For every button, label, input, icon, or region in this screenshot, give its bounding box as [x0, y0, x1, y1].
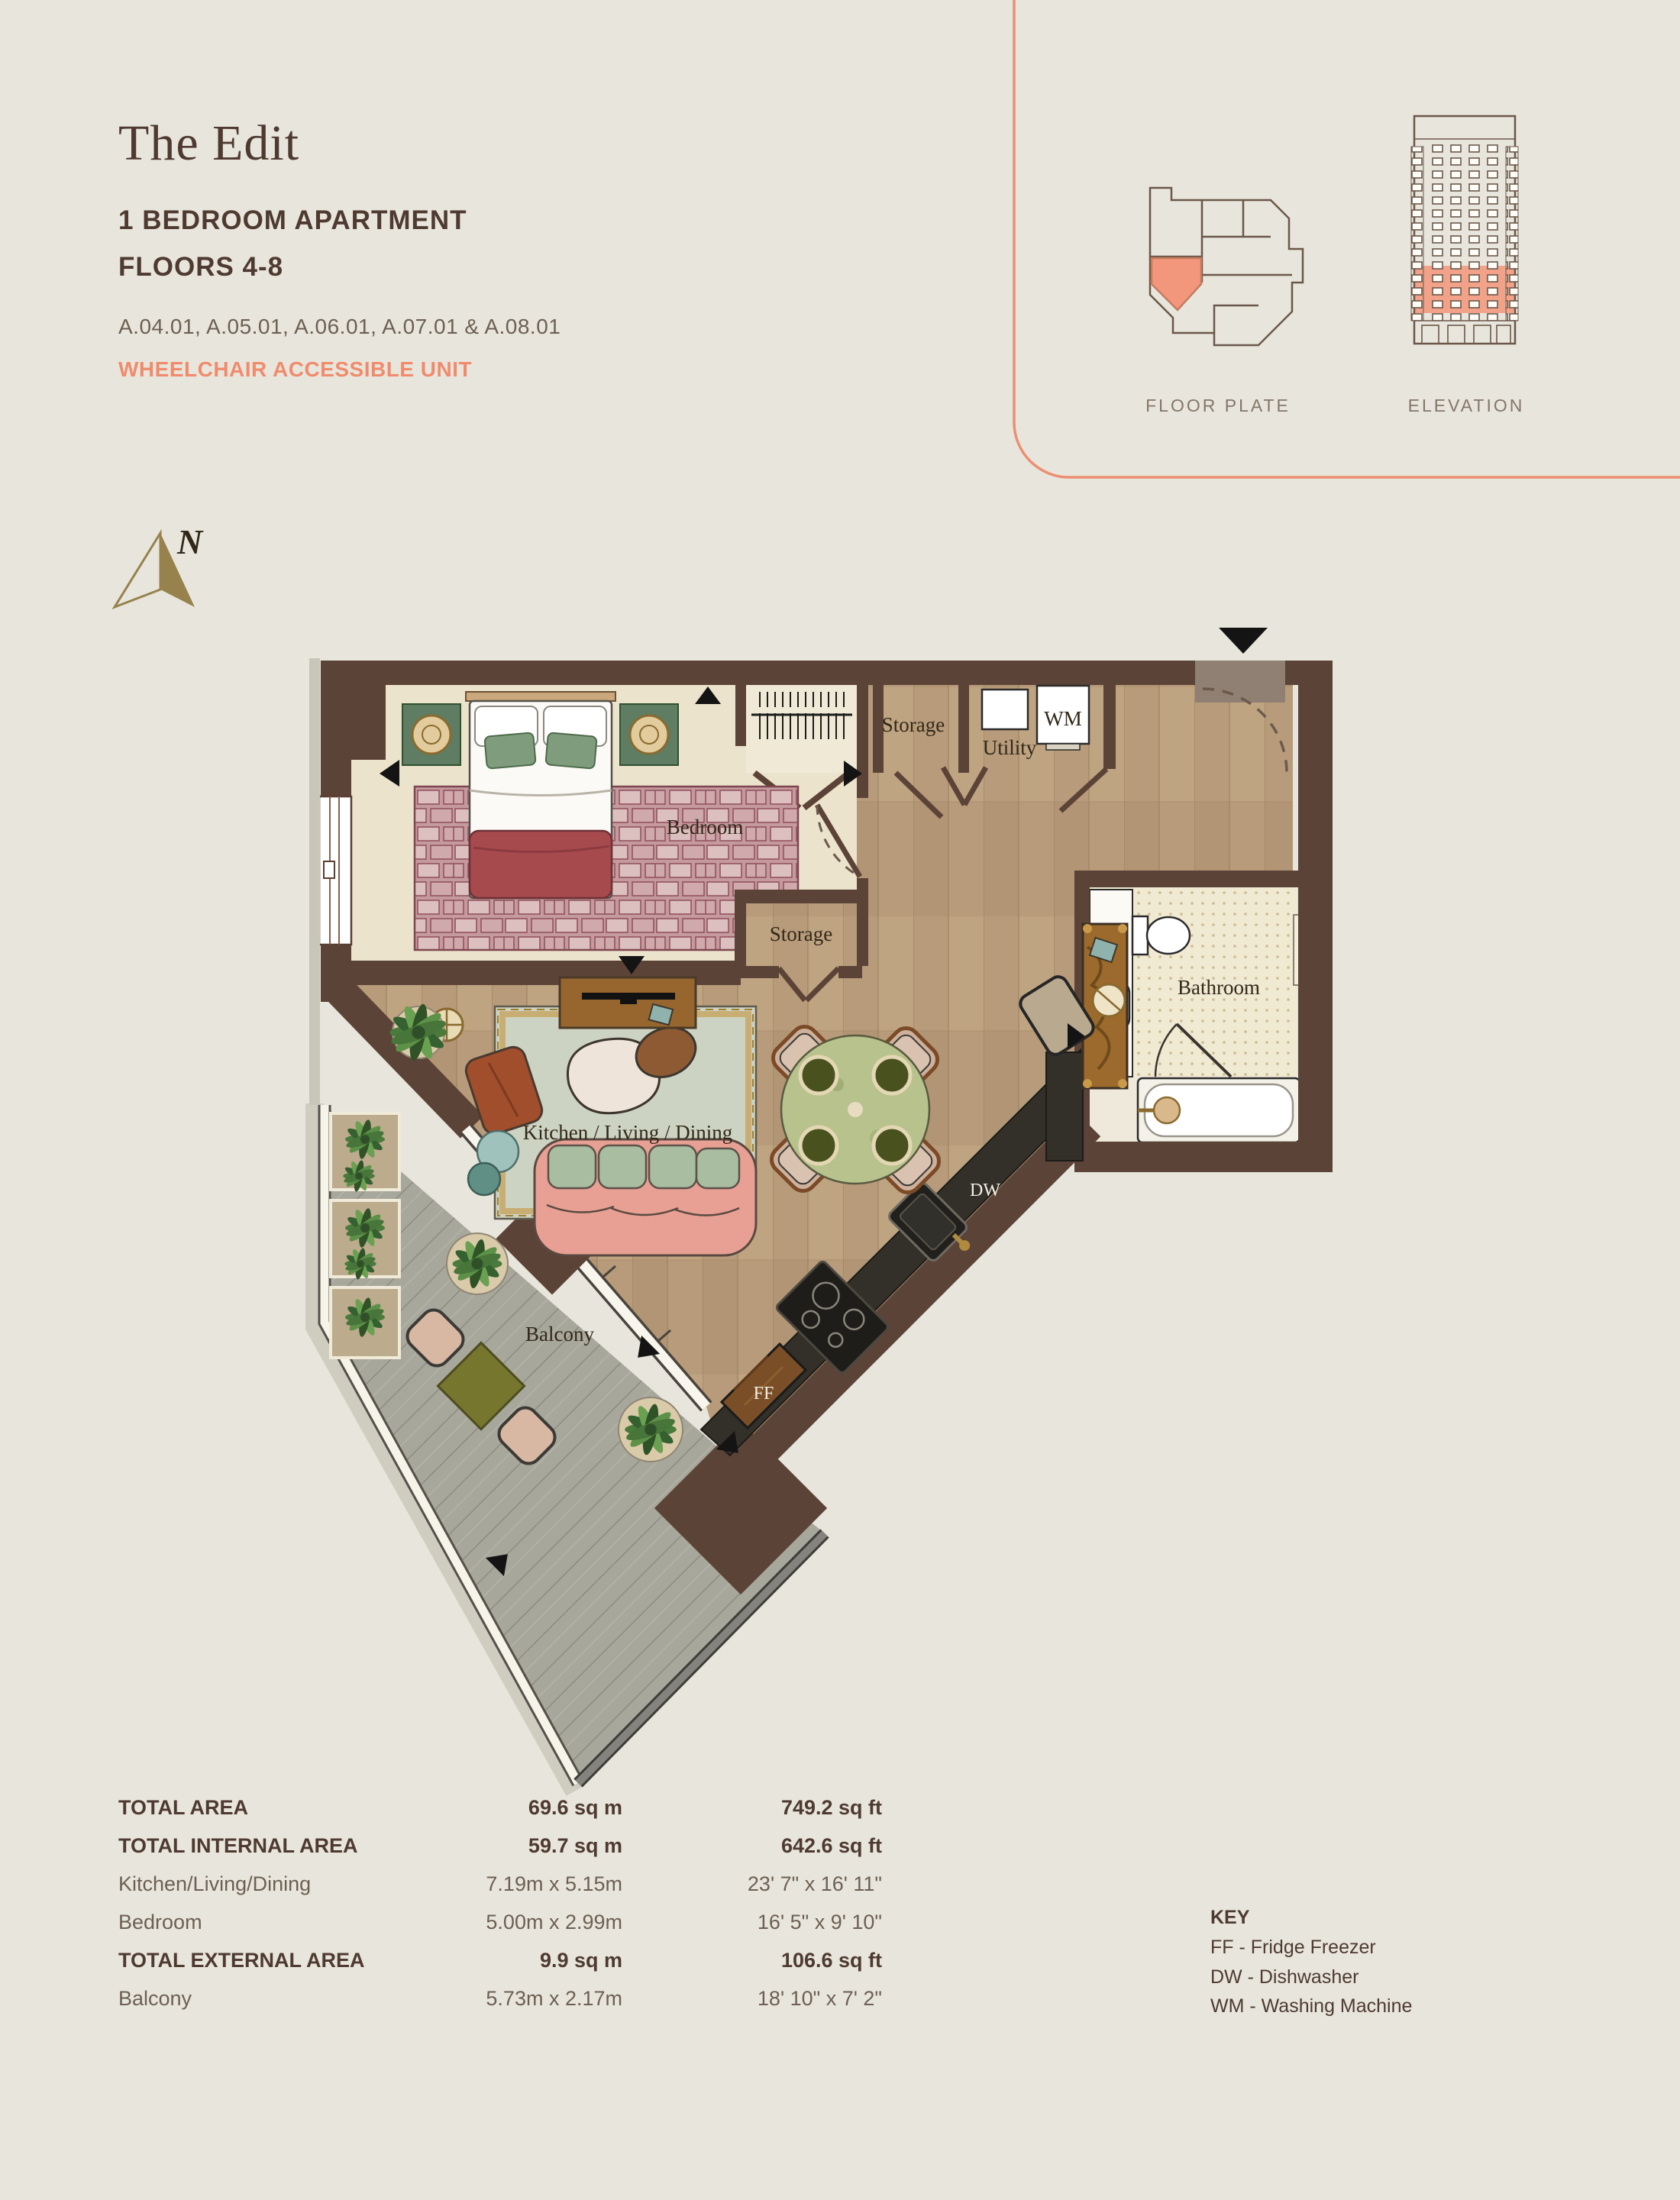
table-metric: 5.00m x 2.99m	[424, 1911, 622, 1934]
table-imperial: 23' 7" x 16' 11"	[622, 1872, 882, 1896]
tv	[582, 993, 675, 1000]
bedroom-window	[319, 796, 351, 945]
table-imperial: 642.6 sq ft	[622, 1834, 882, 1858]
north-arrow-outline	[115, 533, 160, 607]
bathroom-label: Bathroom	[1178, 976, 1260, 999]
table-row-label: Bedroom	[118, 1911, 424, 1934]
table-imperial: 18' 10" x 7' 2"	[622, 1987, 882, 2011]
table-imperial: 749.2 sq ft	[622, 1796, 882, 1820]
table-row-label: TOTAL AREA	[118, 1796, 424, 1820]
north-label: N	[176, 522, 204, 561]
table-row-label: Balcony	[118, 1987, 424, 2011]
north-arrow: N	[115, 522, 204, 607]
ff-label: FF	[754, 1384, 774, 1404]
key-title: KEY	[1210, 1903, 1412, 1933]
table-imperial: 106.6 sq ft	[622, 1949, 882, 1972]
table-metric: 59.7 sq m	[424, 1834, 622, 1858]
accent-pillow	[484, 732, 535, 768]
storage-top-label: Storage	[882, 713, 945, 736]
floor-plate-unit-highlight	[1152, 258, 1201, 310]
bedside-table	[630, 716, 668, 754]
table-metric: 69.6 sq m	[424, 1796, 622, 1820]
table-row-label: TOTAL INTERNAL AREA	[118, 1834, 424, 1858]
table-row-label: TOTAL EXTERNAL AREA	[118, 1949, 424, 1972]
balcony-label: Balcony	[525, 1323, 594, 1346]
key-block: KEY FF - Fridge Freezer DW - Dishwasher …	[1210, 1903, 1412, 2021]
storage-mid-label: Storage	[770, 922, 832, 945]
dining-set	[766, 1021, 944, 1197]
balcony-planters	[331, 1113, 399, 1358]
dw-label: DW	[970, 1181, 1000, 1200]
table-imperial: 16' 5" x 9' 10"	[622, 1911, 882, 1934]
utility-appliance	[982, 690, 1028, 729]
bathtub	[1138, 1078, 1300, 1142]
slab-edge	[309, 658, 320, 1105]
bed-throw	[470, 831, 612, 898]
panel-border	[1014, 0, 1680, 477]
entry-threshold	[1195, 661, 1285, 703]
table-row-label: Kitchen/Living/Dining	[118, 1872, 424, 1896]
side-table-teal	[468, 1163, 500, 1195]
table-metric: 7.19m x 5.15m	[424, 1872, 622, 1896]
bedside-table	[412, 716, 451, 754]
kld-label: Kitchen / Living / Dining	[523, 1121, 732, 1144]
tv-unit	[560, 977, 696, 1028]
table-metric: 9.9 sq m	[424, 1949, 622, 1972]
area-table: TOTAL AREA 69.6 sq m 749.2 sq ft TOTAL I…	[118, 1796, 882, 2011]
wm-label: WM	[1044, 707, 1082, 730]
brochure-page: The Edit 1 BEDROOM APARTMENT FLOORS 4-8 …	[0, 0, 1680, 2200]
key-item-wm: WM - Washing Machine	[1210, 1992, 1412, 2021]
key-item-dw: DW - Dishwasher	[1210, 1963, 1412, 1992]
sofa	[535, 1139, 756, 1255]
bedroom-label: Bedroom	[667, 816, 744, 838]
accent-pillow	[545, 732, 596, 768]
table-metric: 5.73m x 2.17m	[424, 1987, 622, 2011]
toilet	[1132, 916, 1190, 955]
floor-plate-diagram	[1150, 188, 1303, 345]
bed	[466, 692, 615, 898]
utility-label: Utility	[983, 736, 1037, 759]
key-item-ff: FF - Fridge Freezer	[1210, 1933, 1412, 1963]
elevation-diagram	[1411, 116, 1518, 344]
info-panel	[1014, 0, 1680, 477]
